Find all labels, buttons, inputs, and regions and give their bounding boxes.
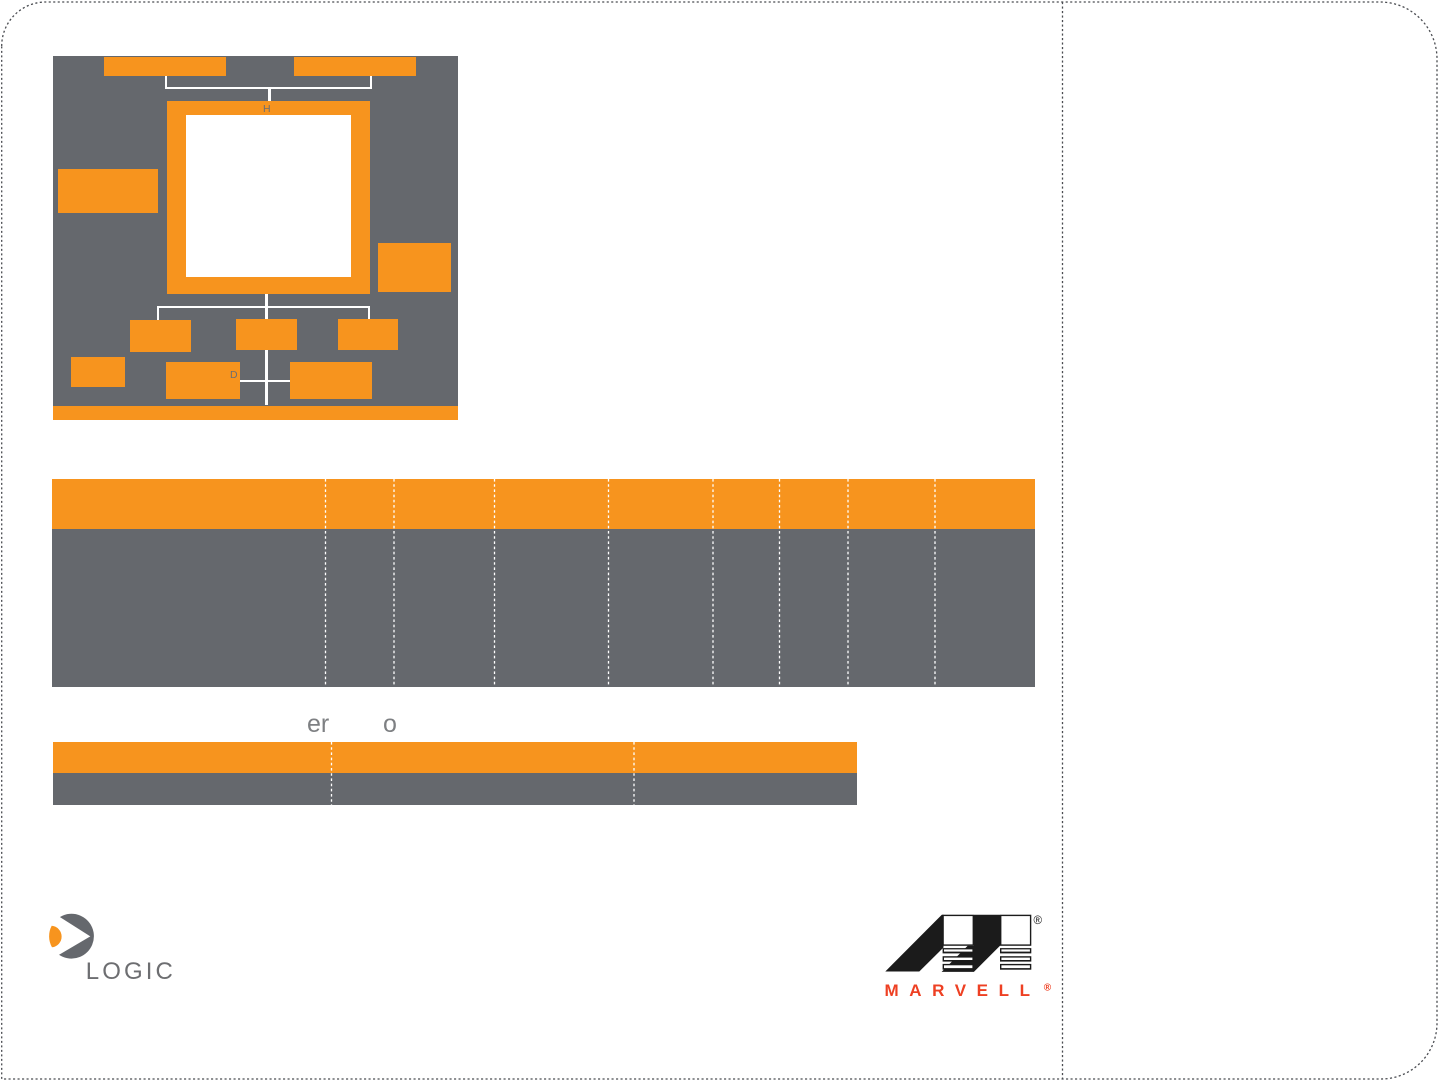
svg-text:MARVELL: MARVELL bbox=[885, 981, 1041, 1000]
svg-text:LOGIC: LOGIC bbox=[86, 958, 176, 985]
svg-text:®: ® bbox=[1044, 983, 1052, 994]
svg-text:®: ® bbox=[1034, 915, 1043, 927]
